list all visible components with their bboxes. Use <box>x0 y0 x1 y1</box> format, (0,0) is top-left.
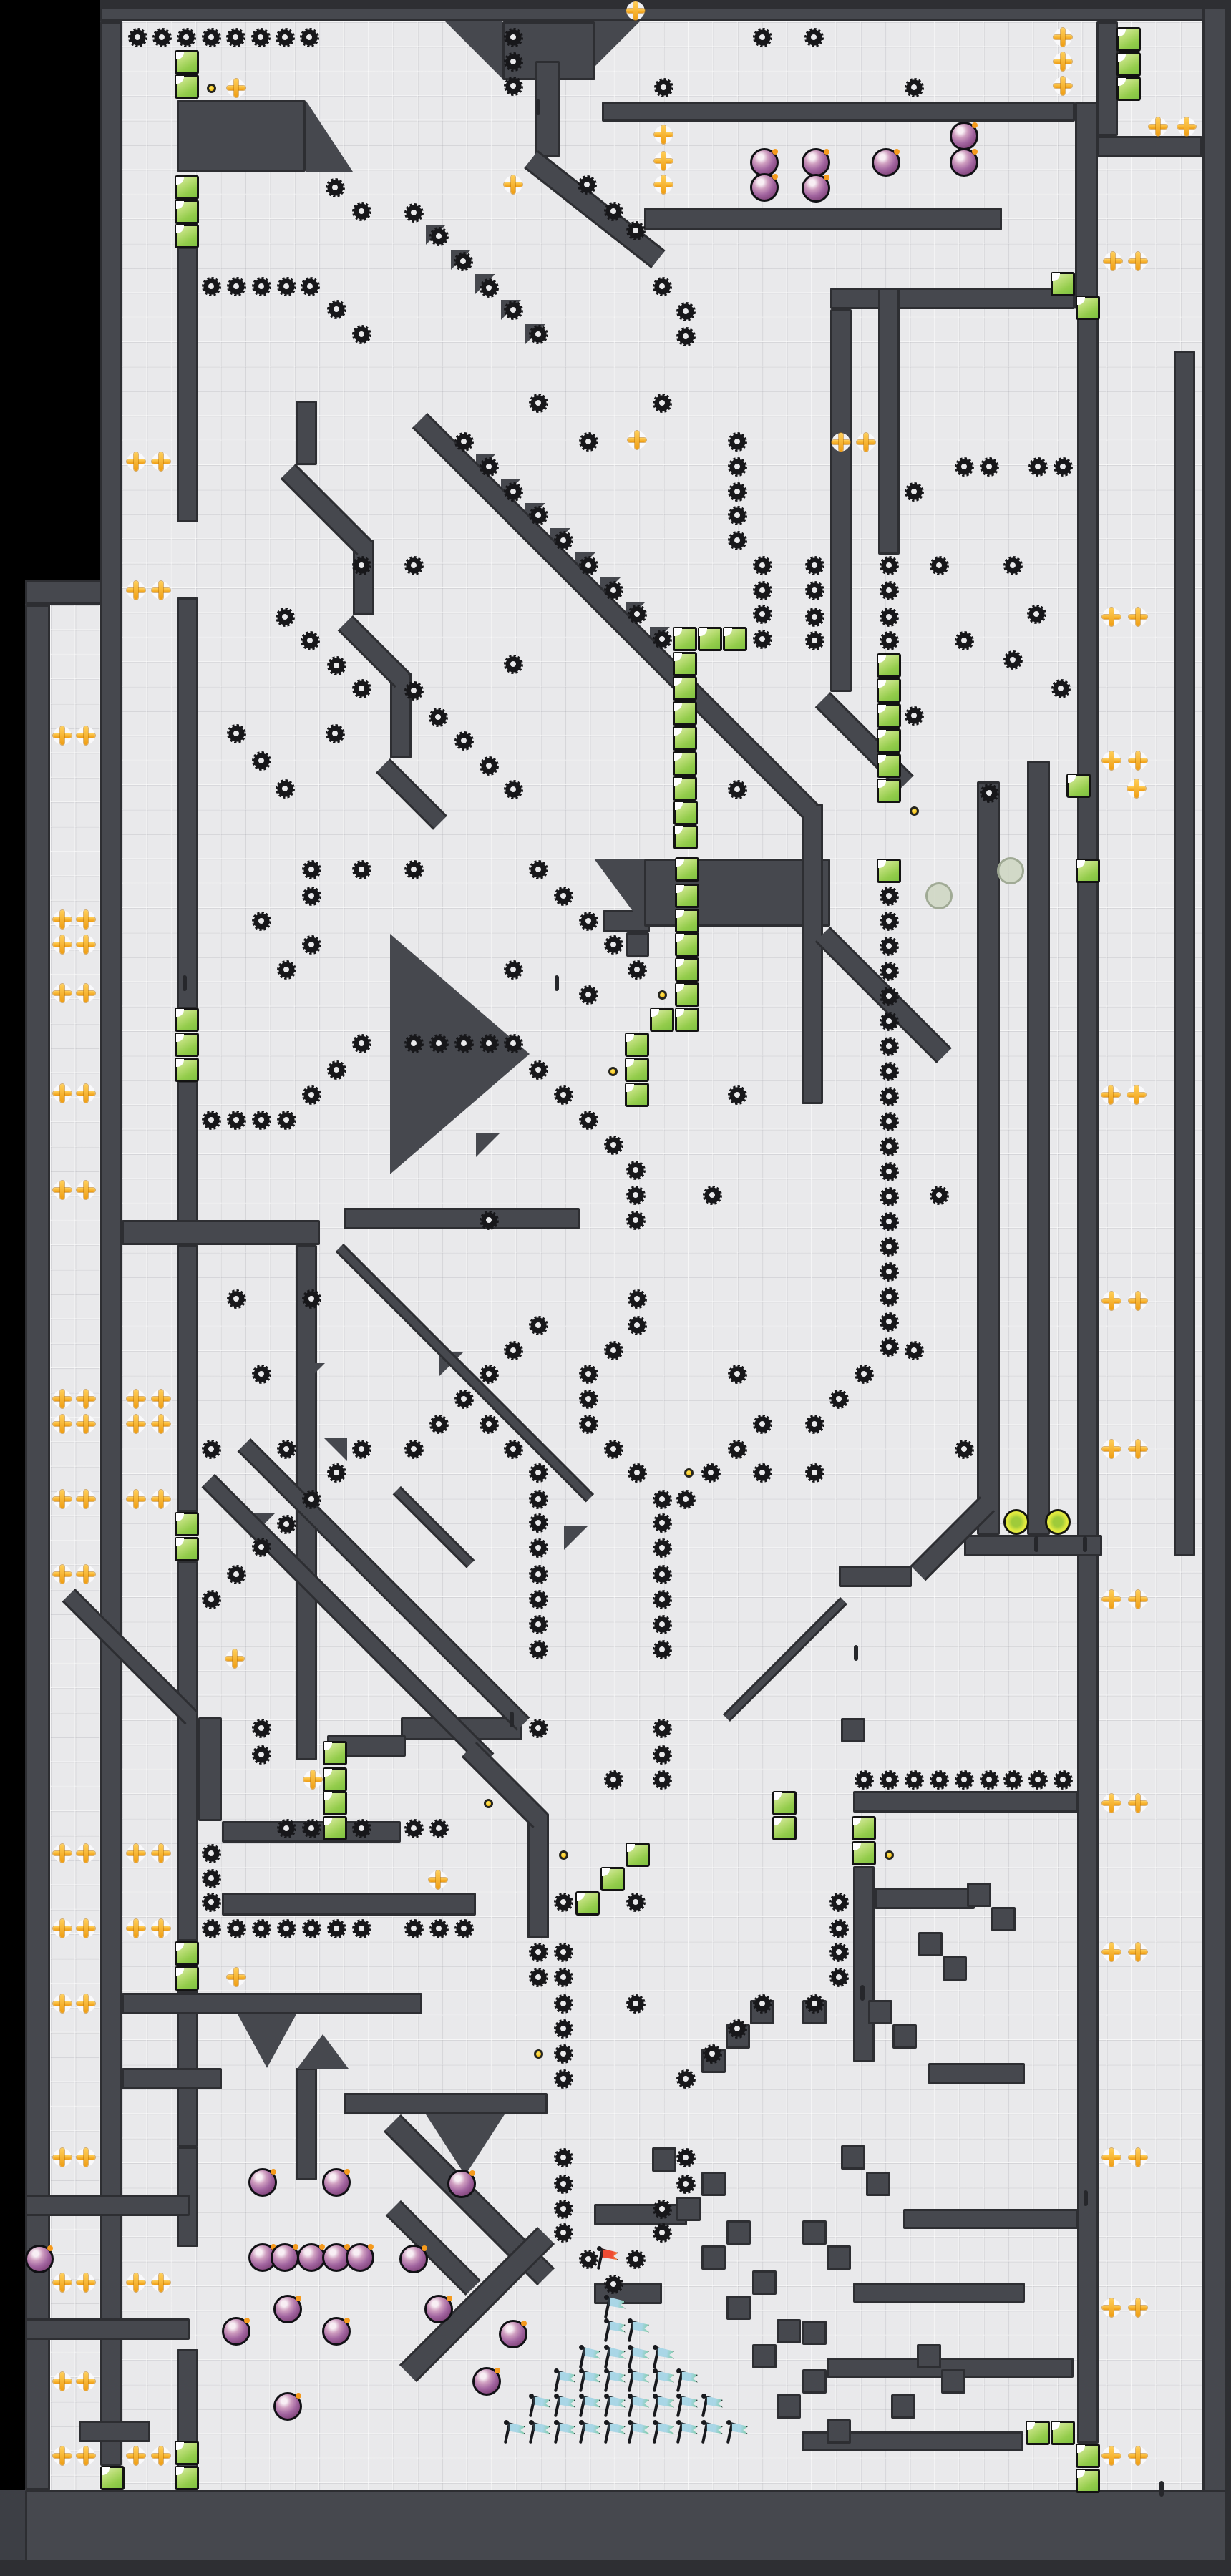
gear-icon[interactable] <box>653 630 672 649</box>
gear-icon[interactable] <box>202 1919 221 1938</box>
gear-icon[interactable] <box>554 1893 573 1912</box>
gear-icon[interactable] <box>829 1919 849 1938</box>
gear-icon[interactable] <box>805 608 824 627</box>
gear-icon[interactable] <box>554 2044 573 2064</box>
yellow-orb-icon[interactable] <box>1045 1509 1071 1535</box>
gear-icon[interactable] <box>326 724 345 743</box>
gear-icon[interactable] <box>626 221 646 240</box>
plus-pickup-icon[interactable] <box>124 2444 148 2468</box>
green-block[interactable] <box>877 703 901 728</box>
green-block[interactable] <box>323 1741 347 1765</box>
gear-icon[interactable] <box>251 28 271 47</box>
plus-pickup-icon[interactable] <box>1099 1437 1124 1461</box>
gear-icon[interactable] <box>226 28 245 47</box>
gear-icon[interactable] <box>604 1136 623 1155</box>
plus-pickup-icon[interactable] <box>50 2369 74 2394</box>
gear-icon[interactable] <box>880 1162 899 1181</box>
gear-icon[interactable] <box>653 1770 672 1790</box>
green-block[interactable] <box>675 884 699 908</box>
gear-icon[interactable] <box>676 2148 696 2167</box>
gear-icon[interactable] <box>504 77 523 96</box>
plus-pickup-icon[interactable] <box>1126 1437 1150 1461</box>
gear-icon[interactable] <box>579 556 598 575</box>
gear-icon[interactable] <box>529 1590 548 1609</box>
plus-pickup-icon[interactable] <box>651 149 676 173</box>
green-block[interactable] <box>1116 27 1141 52</box>
gear-icon[interactable] <box>753 1994 772 2014</box>
bomb-icon[interactable] <box>950 148 978 177</box>
gear-icon[interactable] <box>429 1919 449 1938</box>
gear-icon[interactable] <box>1054 457 1073 477</box>
plus-pickup-icon[interactable] <box>74 907 98 932</box>
plus-pickup-icon[interactable] <box>149 1916 173 1941</box>
plus-pickup-icon[interactable] <box>74 2145 98 2170</box>
plus-pickup-icon[interactable] <box>625 428 649 452</box>
gear-icon[interactable] <box>529 1943 548 1962</box>
plus-pickup-icon[interactable] <box>124 1916 148 1941</box>
gear-icon[interactable] <box>626 1211 646 1230</box>
gear-icon[interactable] <box>352 1440 371 1459</box>
gear-icon[interactable] <box>404 1440 424 1459</box>
gear-icon[interactable] <box>676 2175 696 2194</box>
gear-icon[interactable] <box>880 962 899 981</box>
gear-icon[interactable] <box>701 1463 721 1483</box>
gear-icon[interactable] <box>676 327 696 346</box>
gear-icon[interactable] <box>554 531 573 550</box>
plus-pickup-icon[interactable] <box>50 1178 74 1202</box>
green-block[interactable] <box>600 1867 625 1891</box>
coin-icon[interactable] <box>658 990 667 1000</box>
gear-icon[interactable] <box>404 203 424 223</box>
gear-icon[interactable] <box>404 860 424 879</box>
bomb-icon[interactable] <box>297 2243 326 2272</box>
plus-pickup-icon[interactable] <box>1126 2145 1150 2170</box>
gear-icon[interactable] <box>880 1187 899 1206</box>
gear-icon[interactable] <box>454 252 473 271</box>
gear-icon[interactable] <box>277 277 296 296</box>
gear-icon[interactable] <box>905 482 924 502</box>
bomb-icon[interactable] <box>248 2168 277 2197</box>
gear-icon[interactable] <box>480 1415 499 1434</box>
gear-icon[interactable] <box>529 1463 548 1483</box>
plus-pickup-icon[interactable] <box>149 2270 173 2295</box>
plus-pickup-icon[interactable] <box>74 2444 98 2468</box>
plus-pickup-icon[interactable] <box>1099 1289 1124 1313</box>
coin-icon[interactable] <box>608 1067 618 1076</box>
green-block[interactable] <box>673 801 698 825</box>
plus-pickup-icon[interactable] <box>1099 605 1124 629</box>
gear-icon[interactable] <box>327 1463 346 1483</box>
bomb-icon[interactable] <box>950 122 978 150</box>
gear-icon[interactable] <box>653 2200 672 2219</box>
gear-icon[interactable] <box>980 1770 999 1790</box>
coin-icon[interactable] <box>559 1850 568 1860</box>
plus-pickup-icon[interactable] <box>1124 1083 1149 1107</box>
bomb-icon[interactable] <box>271 2243 299 2272</box>
green-block[interactable] <box>175 224 199 248</box>
gear-icon[interactable] <box>604 581 623 600</box>
gear-icon[interactable] <box>880 1012 899 1031</box>
gear-icon[interactable] <box>529 1538 548 1558</box>
gear-icon[interactable] <box>202 1844 221 1863</box>
green-block[interactable] <box>323 1791 347 1815</box>
plus-pickup-icon[interactable] <box>74 1916 98 1941</box>
gear-icon[interactable] <box>480 1365 499 1384</box>
gear-icon[interactable] <box>529 1968 548 1987</box>
plus-pickup-icon[interactable] <box>1126 2296 1150 2320</box>
plus-pickup-icon[interactable] <box>124 449 148 474</box>
gear-icon[interactable] <box>703 2044 722 2064</box>
gear-icon[interactable] <box>554 2223 573 2243</box>
plus-pickup-icon[interactable] <box>149 1387 173 1411</box>
plus-pickup-icon[interactable] <box>124 1487 148 1511</box>
plus-pickup-icon[interactable] <box>1124 776 1149 801</box>
cyan-flag-icon[interactable] <box>623 2318 651 2345</box>
gear-icon[interactable] <box>880 1037 899 1056</box>
gear-icon[interactable] <box>227 1289 246 1309</box>
plus-pickup-icon[interactable] <box>1051 49 1075 74</box>
green-block[interactable] <box>1076 296 1100 320</box>
gear-icon[interactable] <box>829 1893 849 1912</box>
gear-icon[interactable] <box>628 1316 647 1335</box>
cyan-flag-icon[interactable] <box>623 2368 651 2395</box>
gear-icon[interactable] <box>252 912 271 931</box>
plus-pickup-icon[interactable] <box>50 1916 74 1941</box>
gear-icon[interactable] <box>554 2069 573 2089</box>
green-block[interactable] <box>175 1058 199 1082</box>
gear-icon[interactable] <box>880 1062 899 1081</box>
plus-pickup-icon[interactable] <box>223 1646 247 1671</box>
gear-icon[interactable] <box>1051 679 1071 698</box>
gear-icon[interactable] <box>653 394 672 413</box>
bomb-icon[interactable] <box>750 173 779 202</box>
gear-icon[interactable] <box>480 457 499 477</box>
plus-pickup-icon[interactable] <box>74 1562 98 1586</box>
plus-pickup-icon[interactable] <box>149 578 173 602</box>
gear-icon[interactable] <box>626 1893 646 1912</box>
green-block[interactable] <box>673 726 697 751</box>
bomb-icon[interactable] <box>872 148 900 177</box>
gear-icon[interactable] <box>529 1060 548 1080</box>
gear-icon[interactable] <box>252 1365 271 1384</box>
red-flag-icon[interactable] <box>593 2245 620 2273</box>
gear-icon[interactable] <box>404 1819 424 1838</box>
green-block[interactable] <box>772 1816 797 1840</box>
gear-icon[interactable] <box>252 1538 271 1557</box>
cyan-flag-icon[interactable] <box>697 2419 724 2446</box>
gear-icon[interactable] <box>676 1490 696 1509</box>
bomb-icon[interactable] <box>750 148 779 177</box>
gear-icon[interactable] <box>579 1390 598 1409</box>
gear-icon[interactable] <box>626 1994 646 2014</box>
plus-pickup-icon[interactable] <box>50 2145 74 2170</box>
gear-icon[interactable] <box>676 2069 696 2089</box>
gear-icon[interactable] <box>302 1919 321 1938</box>
green-block[interactable] <box>877 728 901 753</box>
gear-icon[interactable] <box>554 1994 573 2014</box>
gear-icon[interactable] <box>980 457 999 477</box>
gear-icon[interactable] <box>128 28 147 47</box>
green-block[interactable] <box>673 776 697 801</box>
plus-pickup-icon[interactable] <box>149 1412 173 1436</box>
gear-icon[interactable] <box>252 1719 271 1738</box>
plus-pickup-icon[interactable] <box>50 1487 74 1511</box>
gear-icon[interactable] <box>653 1513 672 1533</box>
green-block[interactable] <box>1076 2444 1100 2468</box>
green-block[interactable] <box>852 1816 876 1840</box>
green-block[interactable] <box>675 857 699 882</box>
cyan-flag-icon[interactable] <box>575 2368 602 2395</box>
gear-icon[interactable] <box>579 912 598 931</box>
green-block[interactable] <box>1076 2469 1100 2493</box>
gear-icon[interactable] <box>829 1943 849 1962</box>
plus-pickup-icon[interactable] <box>224 1965 248 1989</box>
gear-icon[interactable] <box>855 1770 874 1790</box>
cyan-flag-icon[interactable] <box>623 2393 651 2420</box>
gear-icon[interactable] <box>504 1440 523 1459</box>
gear-icon[interactable] <box>504 780 523 799</box>
gear-icon[interactable] <box>480 756 499 776</box>
plus-pickup-icon[interactable] <box>1126 1289 1150 1313</box>
gear-icon[interactable] <box>880 1087 899 1106</box>
gear-icon[interactable] <box>880 937 899 956</box>
gear-icon[interactable] <box>980 784 999 803</box>
gear-icon[interactable] <box>579 985 598 1005</box>
gear-icon[interactable] <box>480 278 499 298</box>
bomb-icon[interactable] <box>322 2317 351 2346</box>
gear-icon[interactable] <box>579 432 598 452</box>
gear-icon[interactable] <box>276 28 295 47</box>
bomb-icon[interactable] <box>222 2317 250 2346</box>
bomb-icon[interactable] <box>424 2295 453 2323</box>
green-block[interactable] <box>323 1767 347 1792</box>
green-block[interactable] <box>877 859 901 883</box>
gear-icon[interactable] <box>227 1565 246 1584</box>
gear-icon[interactable] <box>326 178 345 197</box>
gear-icon[interactable] <box>504 28 523 47</box>
gear-icon[interactable] <box>728 457 747 477</box>
gear-icon[interactable] <box>1028 1770 1048 1790</box>
gear-icon[interactable] <box>880 1112 899 1131</box>
gear-icon[interactable] <box>202 1440 221 1459</box>
gear-icon[interactable] <box>829 1390 849 1409</box>
gear-icon[interactable] <box>504 1034 523 1053</box>
gear-icon[interactable] <box>327 300 346 319</box>
green-block[interactable] <box>675 957 699 982</box>
plus-pickup-icon[interactable] <box>74 981 98 1005</box>
gear-icon[interactable] <box>301 631 320 650</box>
bomb-icon[interactable] <box>25 2245 54 2273</box>
gear-icon[interactable] <box>277 1919 296 1938</box>
gear-icon[interactable] <box>300 28 319 47</box>
gear-icon[interactable] <box>302 1819 321 1838</box>
cyan-flag-icon[interactable] <box>550 2368 577 2395</box>
gear-icon[interactable] <box>554 1943 573 1962</box>
gear-icon[interactable] <box>352 679 371 698</box>
gear-icon[interactable] <box>529 1565 548 1584</box>
gear-icon[interactable] <box>880 987 899 1006</box>
plus-pickup-icon[interactable] <box>74 2369 98 2394</box>
gear-icon[interactable] <box>880 581 899 600</box>
gear-icon[interactable] <box>653 1640 672 1659</box>
cyan-flag-icon[interactable] <box>550 2393 577 2420</box>
gear-icon[interactable] <box>554 2019 573 2039</box>
green-block[interactable] <box>877 753 901 778</box>
gear-icon[interactable] <box>277 1440 296 1459</box>
gear-icon[interactable] <box>728 1365 747 1384</box>
coin-icon[interactable] <box>207 84 216 93</box>
gear-icon[interactable] <box>252 1111 271 1130</box>
plus-pickup-icon[interactable] <box>50 1991 74 2016</box>
green-block[interactable] <box>675 982 699 1007</box>
plus-pickup-icon[interactable] <box>74 1387 98 1411</box>
gear-icon[interactable] <box>753 605 772 624</box>
coin-icon[interactable] <box>534 2049 543 2059</box>
gear-icon[interactable] <box>454 1034 474 1053</box>
bomb-icon[interactable] <box>346 2243 374 2272</box>
pale-orb-icon[interactable] <box>997 857 1024 884</box>
gear-icon[interactable] <box>404 681 424 701</box>
plus-pickup-icon[interactable] <box>124 1841 148 1865</box>
gear-icon[interactable] <box>880 1262 899 1282</box>
green-block[interactable] <box>323 1816 347 1840</box>
gear-icon[interactable] <box>529 394 548 413</box>
plus-pickup-icon[interactable] <box>50 981 74 1005</box>
gear-icon[interactable] <box>805 581 824 600</box>
plus-pickup-icon[interactable] <box>74 1487 98 1511</box>
plus-pickup-icon[interactable] <box>74 1081 98 1106</box>
gear-icon[interactable] <box>202 1893 221 1912</box>
green-block[interactable] <box>675 932 699 957</box>
gear-icon[interactable] <box>252 277 271 296</box>
gear-icon[interactable] <box>504 301 523 320</box>
gear-icon[interactable] <box>429 1819 449 1838</box>
gear-icon[interactable] <box>955 1440 974 1459</box>
bomb-icon[interactable] <box>499 2320 527 2348</box>
plus-pickup-icon[interactable] <box>74 1841 98 1865</box>
gear-icon[interactable] <box>728 1085 747 1105</box>
green-block[interactable] <box>698 627 722 651</box>
gear-icon[interactable] <box>227 277 246 296</box>
gear-icon[interactable] <box>653 1538 672 1558</box>
gear-icon[interactable] <box>905 1770 924 1790</box>
gear-icon[interactable] <box>728 432 747 452</box>
plus-pickup-icon[interactable] <box>1051 74 1075 98</box>
plus-pickup-icon[interactable] <box>1099 1940 1124 1964</box>
gear-icon[interactable] <box>604 935 623 955</box>
green-block[interactable] <box>723 627 747 651</box>
gear-icon[interactable] <box>276 608 295 627</box>
plus-pickup-icon[interactable] <box>124 578 148 602</box>
gear-icon[interactable] <box>177 28 196 47</box>
cyan-flag-icon[interactable] <box>672 2419 699 2446</box>
gear-icon[interactable] <box>829 1968 849 1987</box>
gear-icon[interactable] <box>628 960 647 980</box>
plus-pickup-icon[interactable] <box>1126 1940 1150 1964</box>
bomb-icon[interactable] <box>273 2392 302 2421</box>
green-block[interactable] <box>175 1941 199 1966</box>
gear-icon[interactable] <box>604 1770 623 1790</box>
gear-icon[interactable] <box>579 1111 598 1130</box>
cyan-flag-icon[interactable] <box>672 2393 699 2420</box>
plus-pickup-icon[interactable] <box>426 1868 450 1892</box>
gear-icon[interactable] <box>905 1341 924 1360</box>
gear-icon[interactable] <box>554 887 573 906</box>
bomb-icon[interactable] <box>802 174 830 203</box>
gear-icon[interactable] <box>429 1034 449 1053</box>
gear-icon[interactable] <box>1003 650 1023 670</box>
plus-pickup-icon[interactable] <box>124 1387 148 1411</box>
gear-icon[interactable] <box>504 482 523 502</box>
green-block[interactable] <box>1051 2421 1075 2445</box>
plus-pickup-icon[interactable] <box>74 2270 98 2295</box>
gear-icon[interactable] <box>227 1919 246 1938</box>
gear-icon[interactable] <box>202 28 221 47</box>
cyan-flag-icon[interactable] <box>697 2393 724 2420</box>
gear-icon[interactable] <box>728 2019 747 2039</box>
gear-icon[interactable] <box>480 1034 499 1053</box>
plus-pickup-icon[interactable] <box>623 0 648 23</box>
coin-icon[interactable] <box>910 806 919 816</box>
cyan-flag-icon[interactable] <box>575 2393 602 2420</box>
gear-icon[interactable] <box>454 731 474 751</box>
gear-icon[interactable] <box>805 1463 824 1483</box>
gear-icon[interactable] <box>277 960 296 980</box>
gear-icon[interactable] <box>529 1719 548 1738</box>
cyan-flag-icon[interactable] <box>722 2419 749 2446</box>
plus-pickup-icon[interactable] <box>854 430 878 454</box>
gear-icon[interactable] <box>804 28 824 47</box>
gear-icon[interactable] <box>429 1415 449 1434</box>
plus-pickup-icon[interactable] <box>50 1412 74 1436</box>
gear-icon[interactable] <box>930 1770 949 1790</box>
cyan-flag-icon[interactable] <box>525 2419 552 2446</box>
gear-icon[interactable] <box>880 608 899 627</box>
gear-icon[interactable] <box>554 1968 573 1987</box>
gear-icon[interactable] <box>880 556 899 575</box>
gear-icon[interactable] <box>327 656 346 675</box>
plus-pickup-icon[interactable] <box>1101 249 1125 273</box>
green-block[interactable] <box>675 1008 699 1032</box>
green-block[interactable] <box>1076 859 1100 883</box>
gear-icon[interactable] <box>955 631 974 650</box>
green-block[interactable] <box>175 1537 199 1561</box>
gear-icon[interactable] <box>1003 1770 1023 1790</box>
gear-icon[interactable] <box>1003 556 1023 575</box>
plus-pickup-icon[interactable] <box>1099 1587 1124 1611</box>
plus-pickup-icon[interactable] <box>1099 1791 1124 1815</box>
green-block[interactable] <box>175 2466 199 2490</box>
gear-icon[interactable] <box>653 1745 672 1765</box>
green-block[interactable] <box>626 1843 650 1867</box>
gear-icon[interactable] <box>930 556 949 575</box>
gear-icon[interactable] <box>1028 457 1048 477</box>
gear-icon[interactable] <box>454 432 474 452</box>
plus-pickup-icon[interactable] <box>50 1081 74 1106</box>
gear-icon[interactable] <box>202 1590 221 1609</box>
green-block[interactable] <box>175 2441 199 2465</box>
gear-icon[interactable] <box>504 1341 523 1360</box>
gear-icon[interactable] <box>529 1615 548 1634</box>
plus-pickup-icon[interactable] <box>1126 605 1150 629</box>
gear-icon[interactable] <box>653 1490 672 1509</box>
gear-icon[interactable] <box>352 1919 371 1938</box>
green-block[interactable] <box>673 751 697 776</box>
plus-pickup-icon[interactable] <box>124 2270 148 2295</box>
gear-icon[interactable] <box>805 556 824 575</box>
gear-icon[interactable] <box>202 277 221 296</box>
green-block[interactable] <box>650 1008 674 1032</box>
